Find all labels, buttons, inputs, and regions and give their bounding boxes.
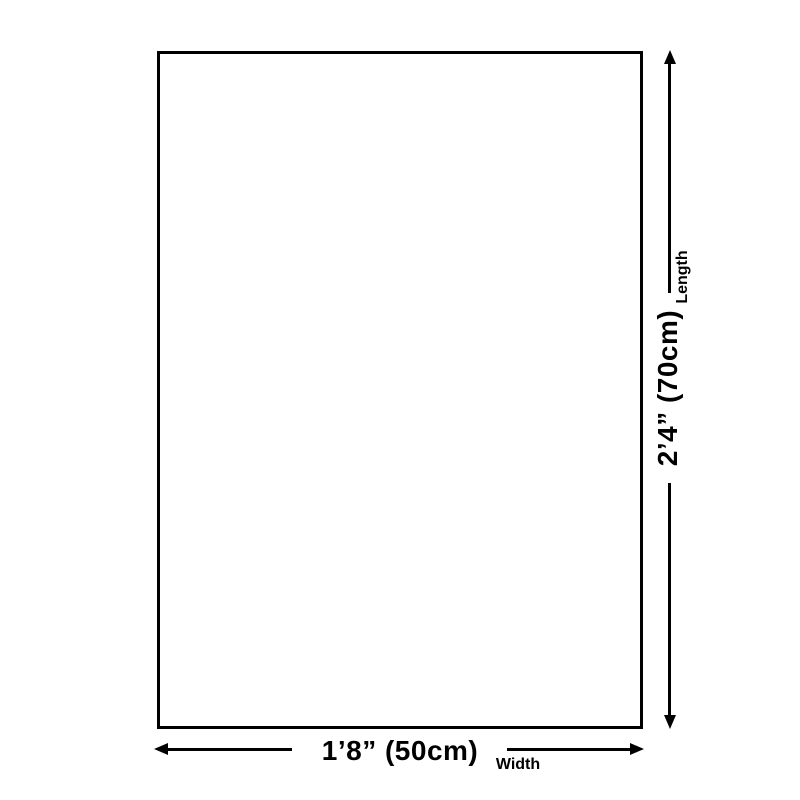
arrow-down-icon [664,715,676,729]
width-axis-label: Width [496,756,540,774]
product-outline-rectangle [157,51,643,729]
width-dimension-value: 1’8” (50cm) [322,735,478,767]
length-arrow-line-lower [668,483,671,716]
length-axis-label: Length [674,250,692,303]
length-dimension-value: 2’4” (70cm) [652,310,684,466]
dimension-diagram: 2’4” (70cm) Length 1’8” (50cm) Width [0,0,800,800]
width-arrow-line-left [166,748,292,751]
width-arrow-line-right [507,748,631,751]
length-arrow-line-upper [668,62,671,293]
arrow-right-icon [630,743,644,755]
